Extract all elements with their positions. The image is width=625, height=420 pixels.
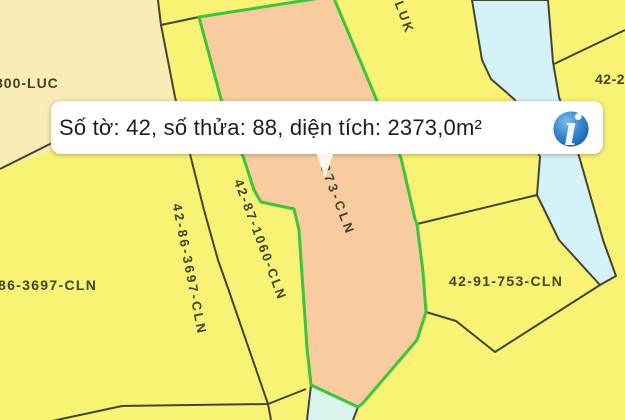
svg-text:ı: ı (564, 111, 577, 147)
svg-text:42-28: 42-28 (595, 71, 625, 87)
svg-text:800-LUC: 800-LUC (0, 75, 59, 91)
svg-text:42-91-753-CLN: 42-91-753-CLN (449, 273, 563, 289)
svg-text:86-3697-CLN: 86-3697-CLN (0, 277, 97, 293)
